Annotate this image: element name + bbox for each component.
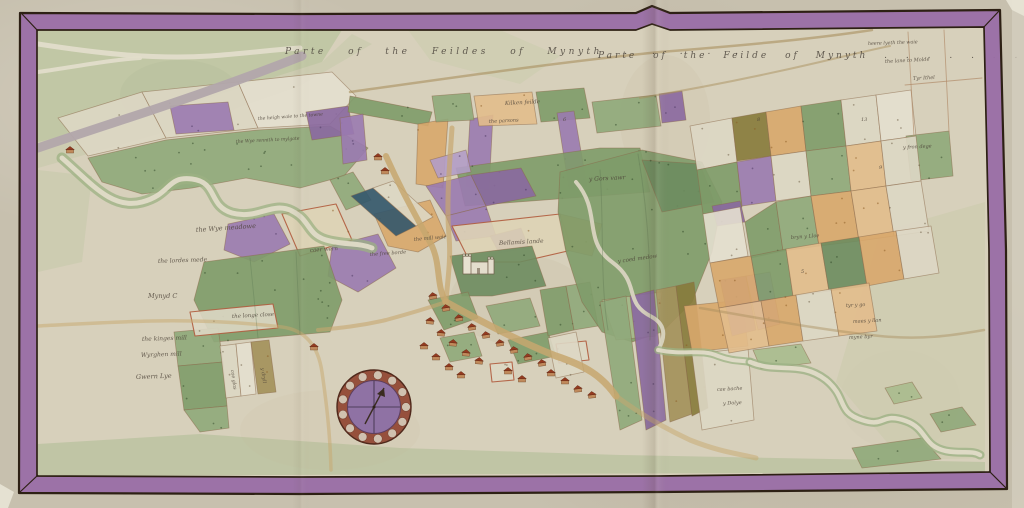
tree-dot: [704, 243, 706, 245]
tree-dot: [503, 324, 505, 326]
map-label: Gwern Lye: [136, 372, 172, 381]
tree-dot: [853, 104, 855, 106]
tree-dot: [504, 364, 506, 366]
tree-dot: [352, 140, 354, 142]
tree-dot: [831, 178, 833, 180]
manuscript-map-page: the Wye meadowethe lordes medeMynyd Cthe…: [0, 0, 1024, 508]
tree-dot: [197, 130, 199, 132]
tower-battlement: [463, 254, 465, 256]
tree-dot: [632, 248, 634, 250]
compass-petal: [346, 424, 355, 433]
tree-dot: [891, 142, 893, 144]
tree-dot: [534, 280, 536, 282]
compass-rose: [337, 370, 411, 444]
tree-dot: [329, 282, 331, 284]
tree-dot: [785, 305, 787, 307]
tree-dot: [808, 301, 810, 303]
tree-dot: [853, 170, 855, 172]
tree-dot: [728, 154, 730, 156]
house-wall: [445, 367, 452, 370]
tree-dot: [260, 165, 262, 167]
tree-dot: [877, 202, 879, 204]
compass-petal: [339, 395, 348, 404]
tree-dot: [628, 415, 630, 417]
tree-dot: [899, 269, 901, 271]
tree-dot: [771, 147, 773, 149]
map-content: the Wye meadowethe lordes medeMynyd Cthe…: [20, 6, 1010, 496]
field-parcel: [737, 156, 776, 206]
tree-dot: [190, 163, 192, 165]
tree-dot: [631, 178, 633, 180]
tree-dot: [750, 339, 752, 341]
tree-dot: [734, 280, 736, 282]
tree-dot: [227, 340, 229, 342]
tree-dot: [837, 113, 839, 115]
page-corner: [0, 484, 14, 508]
tree-dot: [927, 232, 929, 234]
tree-dot: [154, 169, 156, 171]
compass-petal: [358, 433, 367, 442]
compass-petal: [388, 429, 397, 438]
tree-dot: [178, 152, 180, 154]
tree-dot: [321, 301, 323, 303]
tree-dot: [523, 94, 525, 96]
tree-dot: [802, 218, 804, 220]
tree-dot: [941, 421, 943, 423]
tree-dot: [795, 346, 797, 348]
tree-dot: [779, 263, 781, 265]
tree-dot: [687, 253, 689, 255]
tree-dot: [736, 248, 738, 250]
tree-dot: [401, 115, 403, 117]
tree-dot: [450, 323, 452, 325]
map-label: tyr y go: [846, 302, 866, 309]
tree-dot: [183, 385, 185, 387]
tree-dot: [249, 385, 251, 387]
compass-petal: [346, 381, 355, 390]
house-wall: [518, 379, 525, 382]
tree-dot: [731, 255, 733, 257]
tree-dot: [839, 292, 841, 294]
field-parcel: [806, 146, 851, 196]
tree-dot: [884, 250, 886, 252]
field-parcel: [732, 112, 771, 161]
tree-dot: [261, 260, 263, 262]
tree-dot: [557, 164, 559, 166]
tree-dot: [248, 168, 250, 170]
tree-dot: [186, 398, 188, 400]
map-label: 8: [757, 117, 760, 123]
tree-dot: [388, 196, 390, 198]
tree-dot: [864, 138, 866, 140]
tree-dot: [199, 330, 201, 332]
tree-dot: [506, 276, 508, 278]
tree-dot: [470, 344, 472, 346]
tree-dot: [675, 400, 677, 402]
tree-dot: [584, 159, 586, 161]
tree-dot: [264, 151, 266, 153]
tree-dot: [841, 155, 843, 157]
map-label: 13: [861, 117, 867, 123]
map-label: Wyrghen mill: [141, 351, 182, 359]
field-parcel: [170, 102, 234, 134]
tree-dot: [321, 255, 323, 257]
tree-dot: [763, 322, 765, 324]
tree-dot: [835, 222, 837, 224]
house-wall: [310, 347, 317, 350]
map-label: Mynyd C: [147, 292, 177, 300]
tree-dot: [812, 293, 814, 295]
field-parcel: [178, 362, 227, 410]
tree-dot: [830, 261, 832, 263]
tree-dot: [347, 231, 349, 233]
tree-dot: [615, 124, 617, 126]
tree-dot: [475, 193, 477, 195]
tree-dot: [863, 207, 865, 209]
tree-dot: [805, 272, 807, 274]
field-parcel: [831, 283, 877, 336]
map-clipped-content: the Wye meadowethe lordes medeMynyd Cthe…: [20, 6, 1010, 496]
tree-dot: [619, 410, 621, 412]
tree-dot: [135, 157, 137, 159]
tree-dot: [351, 275, 353, 277]
field-parcel: [710, 256, 759, 308]
tree-dot: [920, 231, 922, 233]
tree-dot: [844, 222, 846, 224]
tree-dot: [452, 103, 454, 105]
tree-dot: [222, 351, 224, 353]
tree-dot: [773, 174, 775, 176]
field-parcel: [432, 93, 474, 122]
tree-dot: [841, 198, 843, 200]
tree-dot: [784, 296, 786, 298]
house-wall: [66, 150, 73, 153]
tree-dot: [918, 164, 920, 166]
tree-dot: [638, 102, 640, 104]
tree-dot: [581, 108, 583, 110]
field-parcel: [751, 249, 793, 301]
tree-dot: [485, 135, 487, 137]
house-wall: [420, 346, 427, 349]
tree-dot: [897, 450, 899, 452]
tree-dot: [736, 122, 738, 124]
map-label: 5: [801, 269, 804, 275]
tree-dot: [320, 290, 322, 292]
tree-dot: [835, 311, 837, 313]
tree-dot: [347, 182, 349, 184]
tower-battlement: [491, 257, 493, 259]
tree-dot: [328, 305, 330, 307]
tree-dot: [459, 155, 461, 157]
house-wall: [432, 357, 439, 360]
tree-dot: [583, 311, 585, 313]
tree-dot: [274, 289, 276, 291]
house-wall: [457, 375, 464, 378]
tree-dot: [332, 210, 334, 212]
tree-dot: [736, 191, 738, 193]
tree-dot: [266, 371, 268, 373]
tree-dot: [802, 121, 804, 123]
tree-dot: [518, 264, 520, 266]
tree-dot: [752, 168, 754, 170]
house-wall: [374, 157, 381, 160]
field-parcel: [340, 114, 367, 164]
map-label: Tyr Ithel: [913, 75, 936, 82]
compass-petal: [398, 388, 407, 397]
field-parcel: [771, 151, 811, 201]
tree-dot: [191, 125, 193, 127]
compass-petal: [373, 371, 382, 380]
tree-dot: [471, 165, 473, 167]
tree-dot: [485, 208, 487, 210]
tree-dot: [152, 187, 154, 189]
tree-dot: [144, 170, 146, 172]
tree-dot: [237, 272, 239, 274]
compass-petal: [402, 403, 411, 412]
tree-dot: [480, 105, 482, 107]
house-wall: [547, 373, 554, 376]
estate-map-canvas: the Wye meadowethe lordes medeMynyd Cthe…: [0, 0, 1024, 508]
tree-dot: [889, 207, 891, 209]
tree-dot: [220, 427, 222, 429]
page-edge: [1012, 0, 1024, 508]
tree-dot: [352, 143, 354, 145]
tree-dot: [570, 374, 572, 376]
tree-dot: [417, 129, 419, 131]
tree-dot: [769, 291, 771, 293]
tree-dot: [337, 178, 339, 180]
tree-dot: [523, 254, 525, 256]
tree-dot: [407, 107, 409, 109]
tree-dot: [928, 177, 930, 179]
field-parcel: [766, 106, 806, 156]
tree-dot: [597, 287, 599, 289]
tree-dot: [528, 230, 530, 232]
tree-dot: [117, 147, 119, 149]
tree-dot: [493, 202, 495, 204]
tower-battlement: [466, 254, 468, 256]
tree-dot: [709, 185, 711, 187]
tree-dot: [553, 117, 555, 119]
tree-dot: [560, 324, 562, 326]
tree-dot: [898, 392, 900, 394]
tree-dot: [192, 142, 194, 144]
tree-dot: [204, 149, 206, 151]
tree-dot: [855, 157, 857, 159]
house-wall: [561, 381, 568, 384]
tree-dot: [506, 364, 508, 366]
field-parcel: [876, 90, 916, 141]
tree-dot: [701, 128, 703, 130]
fold-crease: [642, 0, 670, 508]
tree-dot: [722, 334, 724, 336]
tree-dot: [118, 114, 120, 116]
tree-dot: [785, 141, 787, 143]
tree-dot: [730, 420, 732, 422]
tree-dot: [237, 123, 239, 125]
tree-dot: [441, 197, 443, 199]
tree-dot: [525, 189, 527, 191]
tree-dot: [924, 223, 926, 225]
tree-dot: [534, 316, 536, 318]
tower-battlement: [488, 257, 490, 259]
tree-dot: [559, 192, 561, 194]
tree-dot: [751, 202, 753, 204]
tree-dot: [447, 345, 449, 347]
tree-dot: [948, 414, 950, 416]
tree-dot: [204, 272, 206, 274]
church-tower: [463, 256, 471, 274]
tree-dot: [941, 156, 943, 158]
field-parcel: [690, 118, 737, 170]
tree-dot: [836, 256, 838, 258]
tree-dot: [536, 353, 538, 355]
church-door: [477, 268, 480, 274]
field-parcel: [801, 100, 846, 151]
tree-dot: [213, 423, 215, 425]
house-wall: [381, 171, 388, 174]
tree-dot: [714, 364, 716, 366]
tree-dot: [686, 344, 688, 346]
tree-dot: [630, 382, 632, 384]
tree-dot: [754, 128, 756, 130]
field-parcel: [416, 119, 448, 188]
tree-dot: [455, 105, 457, 107]
compass-petal: [339, 410, 348, 419]
tree-dot: [326, 317, 328, 319]
tree-dot: [719, 280, 721, 282]
field-parcel: [703, 207, 748, 263]
tree-dot: [389, 184, 391, 186]
tree-dot: [267, 355, 269, 357]
map-label: myne byr: [849, 334, 874, 341]
compass-petal: [358, 373, 367, 382]
map-label: y Dolye: [722, 400, 742, 407]
tree-dot: [767, 228, 769, 230]
tree-dot: [202, 345, 204, 347]
tree-dot: [806, 228, 808, 230]
tree-dot: [320, 127, 322, 129]
tree-dot: [900, 127, 902, 129]
tree-dot: [275, 233, 277, 235]
tree-dot: [517, 360, 519, 362]
fold-crease: [292, 0, 310, 508]
tree-dot: [878, 458, 880, 460]
tree-dot: [775, 360, 777, 362]
tree-dot: [240, 364, 242, 366]
compass-petal: [398, 417, 407, 426]
tree-dot: [897, 119, 899, 121]
tree-dot: [798, 181, 800, 183]
tree-dot: [440, 173, 442, 175]
compass-petal: [373, 434, 382, 443]
field-parcel: [896, 226, 939, 279]
tree-dot: [317, 298, 319, 300]
tree-dot: [911, 396, 913, 398]
compass-petal: [388, 376, 397, 385]
tree-dot: [367, 280, 369, 282]
house-wall: [504, 371, 511, 374]
church-tower: [488, 259, 494, 274]
tree-dot: [674, 106, 676, 108]
tower-battlement: [469, 254, 471, 256]
tree-dot: [571, 246, 573, 248]
compass-pivot: [373, 406, 376, 409]
tree-dot: [682, 231, 684, 233]
